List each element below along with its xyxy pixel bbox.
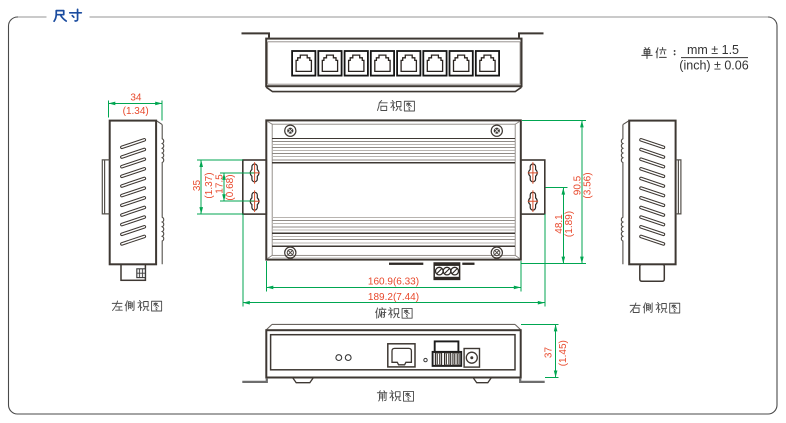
svg-text:mm ± 1.5: mm ± 1.5 <box>687 43 739 57</box>
svg-text:37: 37 <box>544 347 555 359</box>
svg-text:(1.37): (1.37) <box>204 172 215 198</box>
svg-text:(0.68): (0.68) <box>225 174 236 200</box>
svg-text:(3.56): (3.56) <box>583 172 594 198</box>
svg-text:160.9(6.33): 160.9(6.33) <box>368 277 419 288</box>
svg-text:(1.45): (1.45) <box>558 340 569 366</box>
svg-text:35: 35 <box>192 180 203 192</box>
svg-text:189.2(7.44): 189.2(7.44) <box>368 292 419 303</box>
svg-text:34: 34 <box>130 93 142 104</box>
svg-text:(inch) ± 0.06: (inch) ± 0.06 <box>679 59 748 73</box>
svg-text:17.5: 17.5 <box>215 174 226 194</box>
svg-text:(1.34): (1.34) <box>123 106 149 117</box>
svg-text:(1.89): (1.89) <box>564 211 575 237</box>
